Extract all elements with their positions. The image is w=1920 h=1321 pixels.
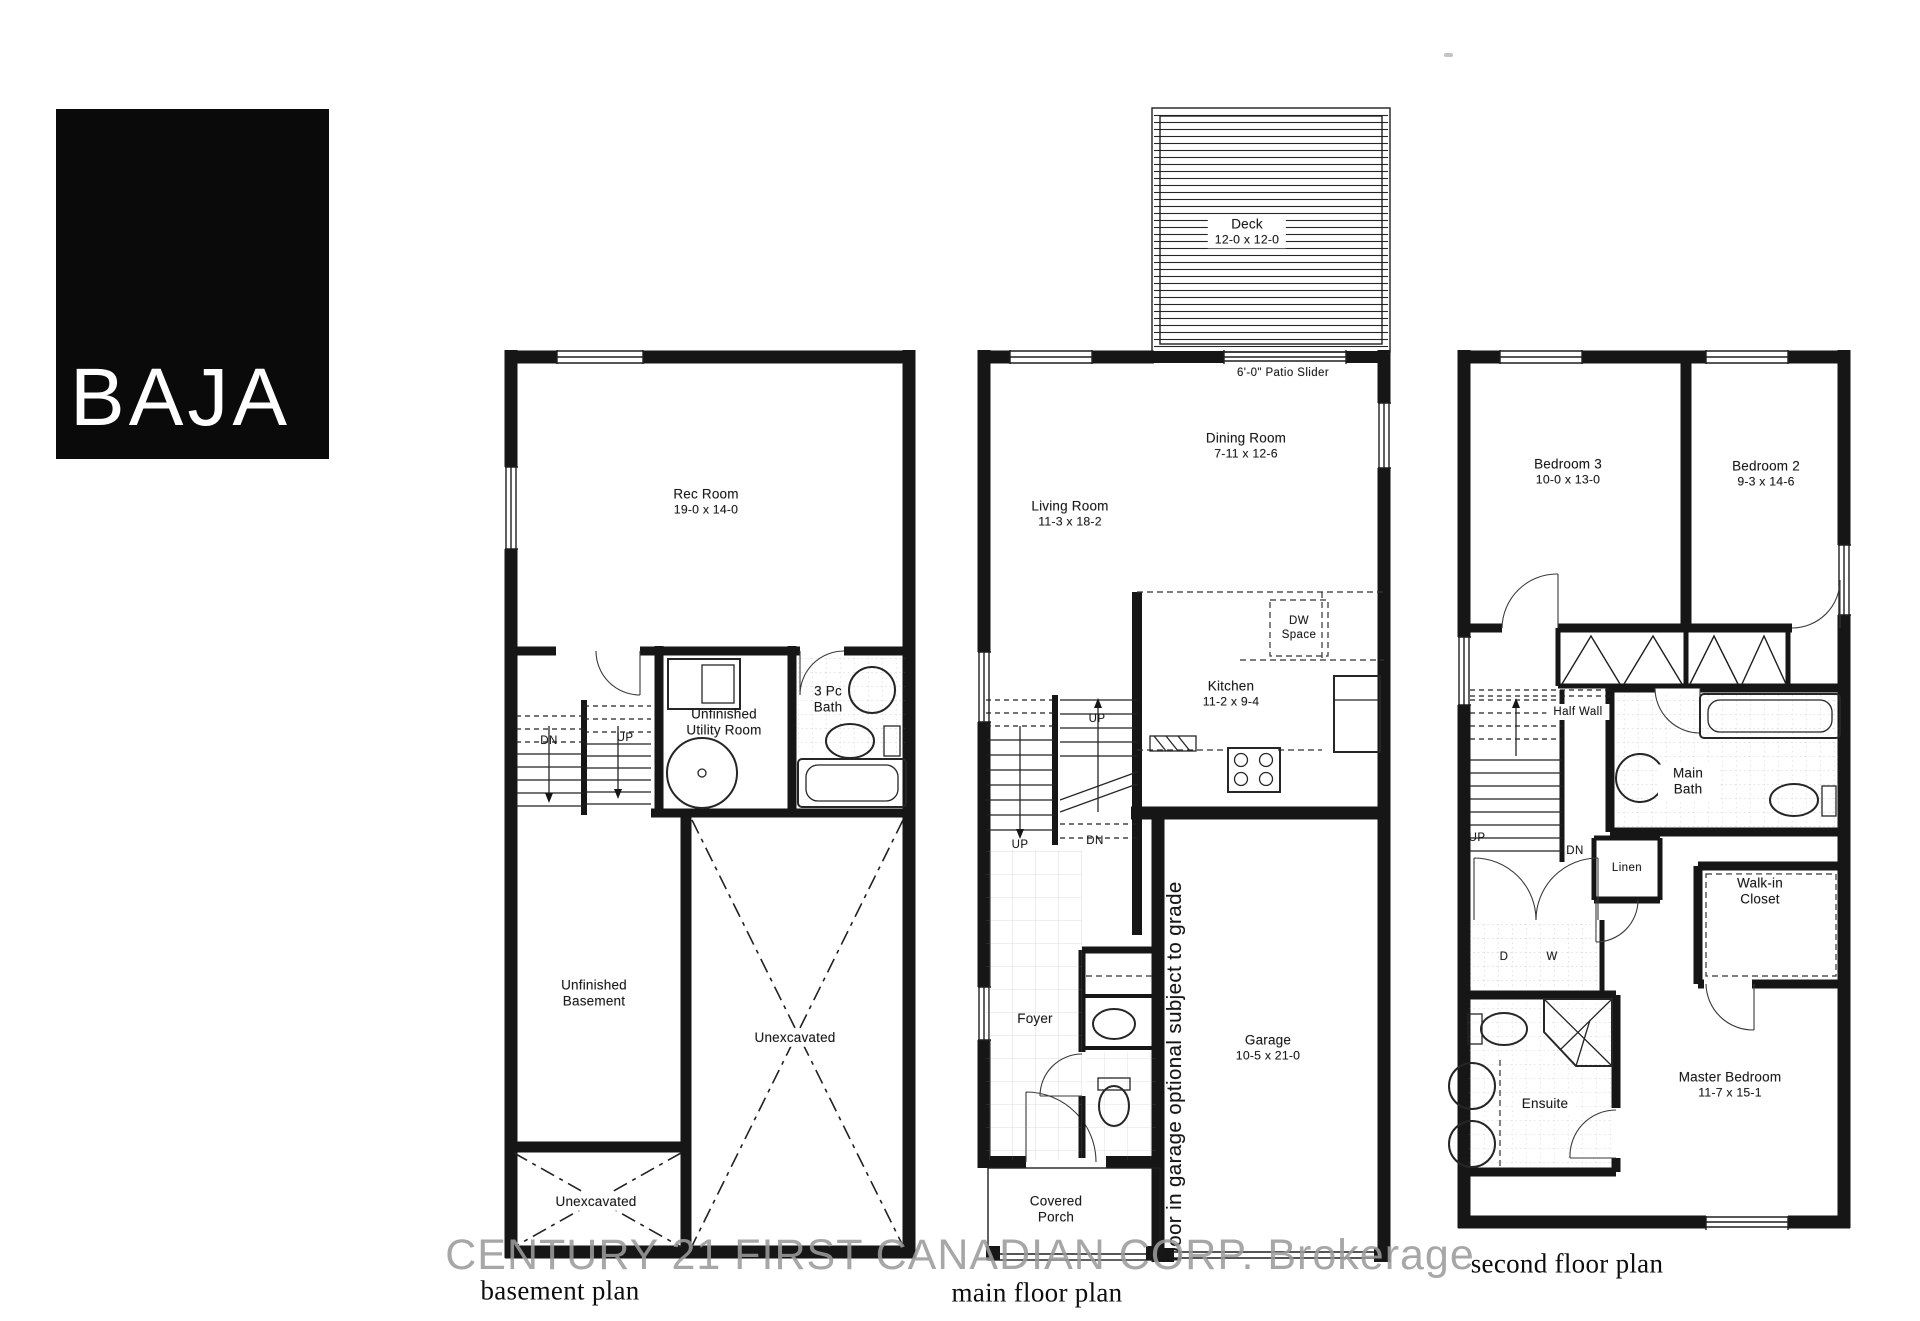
walkin-closet-label: Walk-in Closet <box>1721 875 1799 910</box>
unexcavated-small-label: Unexcavated <box>549 1193 644 1211</box>
stove-icon <box>1228 748 1280 792</box>
fridge-icon <box>1334 676 1380 752</box>
basement-bath-label: 3 Pc Bath <box>805 684 851 717</box>
unfinished-basement-label: Unfinished Basement <box>548 978 640 1011</box>
room-name: Dining Room <box>1206 430 1286 446</box>
room-dims: 9-3 x 14-6 <box>1732 475 1800 490</box>
basement-bathtub-icon <box>798 759 906 807</box>
powder-sink-icon <box>1093 1009 1135 1039</box>
covered-porch-label: Covered Porch <box>1020 1194 1092 1227</box>
hall-tile <box>1086 1052 1156 1160</box>
main-stair-up-label: UP <box>1089 712 1106 726</box>
room-dims: 11-7 x 15-1 <box>1679 1086 1782 1101</box>
laundry-tub-icon <box>668 659 740 709</box>
scan-artifact <box>1444 53 1453 57</box>
bedroom3-label: Bedroom 3 10-0 x 13-0 <box>1534 456 1602 487</box>
baja-logo-text: BAJA <box>70 351 291 445</box>
living-room-label: Living Room 11-3 x 18-2 <box>1031 498 1108 529</box>
room-dims: 12-0 x 12-0 <box>1215 233 1279 248</box>
room-name: Rec Room <box>673 486 738 502</box>
ensuite-label: Ensuite <box>1515 1095 1575 1113</box>
room-name: Bedroom 3 <box>1534 456 1602 472</box>
utility-room-label: Unfinished Utility Room <box>678 707 770 740</box>
second-stair-dn-label: DN <box>1566 844 1583 858</box>
deck-label: Deck 12-0 x 12-0 <box>1208 215 1286 248</box>
room-dims: 7-11 x 12-6 <box>1206 447 1286 462</box>
laundry-tile <box>1470 924 1598 986</box>
garage-label: Garage 10-5 x 21-0 <box>1236 1032 1300 1063</box>
master-bedroom-label: Master Bedroom 11-7 x 15-1 <box>1679 1069 1782 1100</box>
main-bath-label: Main Bath <box>1658 765 1718 800</box>
basement-stair-up-label: UP <box>617 731 634 745</box>
basement-stairs <box>516 700 651 815</box>
room-dims: 19-0 x 14-0 <box>673 503 738 518</box>
bifold-closet-doors <box>1562 636 1786 684</box>
kitchen-sink-icon <box>1150 736 1196 751</box>
room-name: Deck <box>1215 216 1279 232</box>
half-wall-label: Half Wall <box>1546 704 1609 720</box>
room-dims: 10-5 x 21-0 <box>1236 1049 1300 1064</box>
room-name: Living Room <box>1031 498 1108 514</box>
main-floor-caption: main floor plan <box>952 1278 1123 1309</box>
brokerage-watermark: CENTURY 21 FIRST CANADIAN CORP. Brokerag… <box>0 1231 1920 1280</box>
second-stair-up-label: UP <box>1469 831 1486 845</box>
main-stair-up2-label: UP <box>1012 838 1029 852</box>
dining-room-label: Dining Room 7-11 x 12-6 <box>1206 430 1286 461</box>
room-name: Master Bedroom <box>1679 1069 1782 1085</box>
main-stairs <box>986 695 1137 845</box>
main-stair-dn-label: DN <box>1086 834 1103 848</box>
floor-plan-sheet: BAJA Rec Room 19-0 x 14-0 Unfinished Uti… <box>0 0 1920 1321</box>
basement-caption: basement plan <box>480 1276 639 1307</box>
room-name: Bedroom 2 <box>1732 458 1800 474</box>
water-heater-icon <box>667 738 737 808</box>
room-name: Kitchen <box>1203 678 1259 694</box>
rec-room-label: Rec Room 19-0 x 14-0 <box>673 486 738 517</box>
dw-space-label: DW Space <box>1273 614 1325 642</box>
kitchen-cabinets <box>1137 592 1384 792</box>
basement-stair-dn-label: DN <box>540 734 557 748</box>
foyer-tile <box>986 850 1082 1160</box>
washer-label: W <box>1546 950 1557 964</box>
room-dims: 11-2 x 9-4 <box>1203 695 1259 710</box>
unexcavated-label: Unexcavated <box>748 1029 843 1047</box>
dryer-label: D <box>1500 950 1509 964</box>
garage-note-label: Door in garage optional subject to grade <box>1163 858 1187 1262</box>
foyer-label: Foyer <box>1017 1011 1053 1027</box>
room-dims: 10-0 x 13-0 <box>1534 473 1602 488</box>
linen-label: Linen <box>1612 861 1642 875</box>
patio-slider-label: 6'-0" Patio Slider <box>1237 366 1329 380</box>
ensuite-tile <box>1468 999 1612 1167</box>
room-name: Garage <box>1236 1032 1300 1048</box>
bedroom2-label: Bedroom 2 9-3 x 14-6 <box>1732 458 1800 489</box>
main-bath-tile <box>1614 692 1840 828</box>
kitchen-label: Kitchen 11-2 x 9-4 <box>1203 678 1259 709</box>
baja-logo: BAJA <box>56 109 329 459</box>
room-dims: 11-3 x 18-2 <box>1031 515 1108 530</box>
